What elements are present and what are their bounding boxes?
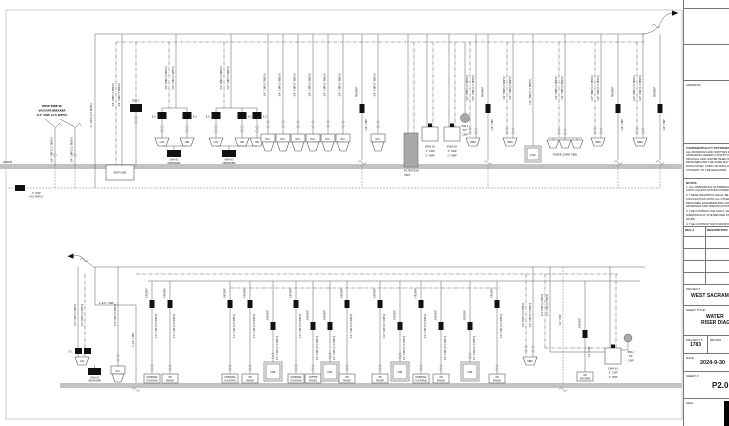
rpz-label: RPZ/BFP	[482, 86, 485, 97]
rpz-backflow-preventer	[468, 322, 473, 330]
pipe-label: 1/2" HWP (2 WSFU)	[165, 66, 168, 89]
water-heater-label: 1" CWP	[425, 149, 435, 153]
valve-icon	[117, 359, 119, 361]
fixture-sink	[559, 140, 571, 148]
fixture-label: FOUNTAIN	[146, 379, 158, 382]
water-heater-label: EWH-03	[608, 368, 618, 371]
valve-icon	[564, 129, 566, 131]
fixture-label: W.C.	[295, 138, 301, 141]
undersink-heater	[222, 150, 236, 157]
valve-icon	[272, 353, 274, 355]
mixing-valve	[212, 112, 221, 119]
mixing-valve	[84, 348, 91, 354]
pipe-label: 1/2" CWP	[621, 119, 624, 131]
rpz-label: RPZ/BFP	[307, 310, 310, 320]
fixture-label: W.C.	[375, 138, 381, 141]
fixture-label: MAKER	[493, 379, 501, 382]
hose-bibb-icon	[55, 124, 60, 129]
rpz-label: RPZ/BFP	[324, 310, 327, 320]
pipe-label: 1/2" CWP (1.5 WSFU)	[276, 336, 279, 360]
mixing-valve	[183, 112, 192, 119]
undersink-label: UNDERSINK	[222, 162, 236, 165]
valve-icon	[600, 128, 602, 130]
valve-icon	[151, 368, 153, 370]
pipe-break-icon	[614, 161, 622, 165]
arrowhead-icon	[672, 11, 679, 16]
fixture-label: URI	[185, 140, 190, 144]
pipe-label: 1-1/2" CWP	[99, 301, 114, 305]
valve-icon	[377, 121, 379, 123]
valve-icon	[249, 368, 251, 370]
fixture-label: URI	[240, 140, 245, 144]
project-number-section: PROJECT # 1783 DRAWN B	[684, 335, 729, 353]
valve-icon	[312, 121, 314, 123]
valve-icon	[312, 125, 314, 127]
pipe-label: 1/2" CWP (0.5 WSFU)	[253, 314, 256, 338]
box	[611, 345, 615, 349]
pipe-label: 3/4" CWP (5 WSFU)	[309, 73, 312, 96]
pipe-label: 3/4" HWP (2 WSFU)	[220, 66, 223, 89]
expansion-tank-label: CWP	[628, 359, 634, 362]
fixture-label: THREE COMP. SINK	[553, 153, 578, 157]
rpz-backflow-preventer	[439, 322, 444, 330]
rpz-label: RPZ/BFP	[464, 310, 467, 320]
pipe-label: 1/2" HWP (1.5 WSFU)	[591, 75, 594, 101]
fixture-label: DW	[398, 370, 403, 374]
title-block: ADDRESS: CONFIDENTIALITY STATEMENT: ALL …	[683, 0, 729, 426]
fixture-sink	[547, 140, 559, 148]
rpz-label: RPZ/BFP	[435, 310, 438, 320]
rpz-label: RPZ/BFP	[224, 288, 227, 298]
rpz-backflow-preventer	[311, 322, 316, 330]
valve-icon	[256, 130, 258, 132]
pipe-label: 3/4" CWP (3 WSFU)	[561, 76, 564, 99]
continuation-arrow	[642, 13, 672, 34]
valve-icon	[594, 128, 596, 130]
revision-row	[684, 237, 729, 249]
valve-icon	[496, 365, 498, 367]
rpz-backflow-preventer	[419, 300, 424, 308]
sheet-title-line2: RISER DIAGRAM	[686, 320, 729, 326]
valve-icon	[642, 131, 644, 133]
rpz-backflow-preventer	[583, 330, 588, 338]
water-heater	[605, 348, 621, 364]
fixture-wc-bowl	[292, 142, 304, 151]
valve-icon	[215, 130, 217, 132]
arrowhead-icon	[68, 254, 74, 259]
valve-icon	[594, 131, 596, 133]
undersink-label: UNDERSINK	[167, 162, 181, 165]
fixture-label: MAKER	[437, 379, 445, 382]
valve-icon	[512, 128, 514, 130]
fixture-label: W.C.	[280, 138, 286, 141]
valve-icon	[267, 125, 269, 127]
valve-icon	[312, 368, 314, 370]
water-heater	[422, 127, 438, 141]
water-heater-label: EWH-01	[425, 145, 435, 149]
fixture-sink	[571, 140, 583, 148]
project-number-value: 1783	[686, 342, 705, 348]
valve-icon	[420, 368, 422, 370]
hose-bibb-icon	[75, 124, 80, 129]
revision-row	[684, 249, 729, 261]
rpz-label: RPZ/BFP	[146, 288, 149, 298]
pipe-label: 1/2" CWP (1 WSFU)	[74, 304, 77, 326]
revision-row	[684, 273, 729, 284]
valve-icon	[267, 121, 269, 123]
water-heater-label: 1" CWP	[447, 149, 457, 153]
undersink-heater	[88, 368, 101, 375]
water-heater-label: 1" HWP	[447, 153, 457, 157]
pipe-break-icon	[559, 388, 567, 392]
fixture-label: SINK	[470, 140, 476, 144]
valve-icon	[399, 353, 401, 355]
pipe-label: 1/2" CWP	[663, 119, 666, 131]
valve-icon	[496, 368, 498, 370]
expansion-tank-label: 3/4"	[463, 129, 468, 132]
rpz-backflow-preventer	[398, 322, 403, 330]
fixture-label: LAV	[160, 140, 165, 144]
rpz-label: RPZ/BFP	[579, 318, 582, 328]
expansion-tank-label: CWP	[462, 133, 468, 136]
box	[450, 124, 454, 128]
valve-icon	[399, 356, 401, 358]
meter-label: (4.5 WSFU)	[29, 196, 43, 199]
expansion-tank	[624, 334, 632, 342]
pipe-label: 3/4" HWP (2 WSFU)	[503, 76, 506, 99]
water-heater-label: 1" HWP	[425, 153, 435, 157]
valve-icon	[558, 132, 560, 134]
valve-icon	[215, 126, 217, 128]
valve-icon	[151, 365, 153, 367]
rpz-label: RPZ/BFP	[612, 86, 615, 97]
rpz-backflow-preventer	[486, 104, 491, 113]
water-meter	[15, 185, 25, 191]
expansion-tank-label: 3/4"	[629, 355, 634, 358]
confidentiality-line: CONSENT OF THE DESIGNER.	[686, 169, 729, 173]
company-box	[684, 44, 729, 80]
pipe-label: 1/2" HWP (1.5 WSFU)	[633, 75, 636, 101]
pipe-label: 3/4" CWP (1.5 WSFU)	[472, 75, 475, 100]
valve-icon	[297, 125, 299, 127]
valve-icon	[342, 125, 344, 127]
fixture-label: SINK	[507, 140, 513, 144]
sheet-border	[6, 10, 682, 419]
valve-icon	[169, 368, 171, 370]
revision-header-row: REV. # DESCRIPTION	[684, 227, 729, 237]
pipe-label: 3/4" CWP (5 WSFU)	[374, 73, 377, 96]
pipe-label: 1/2" CWP (0.5 WSFU)	[424, 314, 427, 338]
grade-line	[0, 164, 682, 169]
valve-icon	[636, 131, 638, 133]
pipe-label: 3/4" CWP (2.5 WSFU)	[71, 137, 74, 162]
valve-icon	[282, 125, 284, 127]
expansion-tank-label: ESP-1	[462, 125, 469, 128]
address-section: ADDRESS:	[684, 80, 729, 143]
fixture-label: W.C.	[340, 138, 346, 141]
rpz-backflow-preventer	[495, 300, 500, 308]
fixture-wc-bowl	[337, 142, 349, 151]
fixture-label: FOUNTAIN	[224, 379, 236, 382]
valve-icon	[186, 130, 188, 132]
valve-icon	[241, 130, 243, 132]
fixture-label: W.C.	[115, 370, 121, 373]
pipe-label: 3/4" CWP (3 WSFU)	[118, 83, 121, 106]
rpz-backflow-preventer	[360, 104, 365, 113]
valve-icon	[379, 368, 381, 370]
valve-icon	[377, 125, 379, 127]
fixture-label: MAKER	[376, 379, 384, 382]
ev-label: E.V.	[248, 116, 252, 119]
project-number-cell: PROJECT # 1783	[684, 336, 708, 353]
valve-icon	[512, 131, 514, 133]
pipe-label: 1/2" CWP (0.5 WSFU)	[155, 314, 158, 338]
confidentiality-text: ALL DRAWINGS AND WRITTEN MATERIALAPPEARI…	[686, 151, 729, 173]
ev-label: E.V.	[193, 116, 197, 119]
ev-label: E.V.	[206, 116, 210, 119]
revision-table: REV. # DESCRIPTION	[684, 226, 729, 284]
valve-icon	[440, 368, 442, 370]
note-2: 2. THESE DRAWINGS SHALL BE USED INCONJUN…	[686, 194, 729, 209]
pipe-label: 1/2" CWP (0.5 WSFU)	[500, 314, 503, 338]
pipe-break-icon	[358, 161, 366, 165]
pipe-label: 1/2" HWP (1.5 WSFU)	[522, 303, 525, 328]
valve-icon	[440, 365, 442, 367]
fixture-wc-bowl	[307, 142, 319, 151]
pipe-label: 1/2" CWP (1.5 WSFU)	[597, 75, 600, 100]
pipe-label: 1/2" CWP	[588, 346, 591, 357]
pipe-label: 1/2" CWP (0.5 WSFU)	[233, 314, 236, 338]
rpz-label: RPZ/BFP	[491, 288, 494, 298]
valve-icon	[475, 128, 477, 130]
filtration-label: FILTRATION	[404, 169, 419, 173]
rev-num-header: REV. #	[684, 227, 706, 236]
seal-label: SEAL	[686, 401, 729, 405]
confidentiality-title: CONFIDENTIALITY STATEMENT:	[686, 146, 729, 150]
sheet-number-section: SHEET # P2.0	[684, 371, 729, 398]
seal-section: SEAL	[684, 398, 729, 426]
valve-icon	[469, 356, 471, 358]
rpz-label: RPZ/BFP	[654, 86, 657, 97]
project-number-label: PROJECT #	[686, 338, 705, 342]
valve-icon	[525, 346, 527, 348]
valve-icon	[295, 368, 297, 370]
fixture-label: DW	[328, 370, 333, 374]
pipe-label: 1/2" CWP (1.5 WSFU)	[529, 79, 532, 104]
pipe-label: 3/4" CWP (2.5 WSFU)	[51, 137, 54, 162]
water-heater-label: 1" HWP	[609, 376, 619, 379]
notes-section: NOTES: 1. ALL DIMENSIONS IN IMPERIALUNIT…	[684, 178, 729, 226]
valve-icon	[346, 368, 348, 370]
pipe-label: 1/2" CWP (1.5 WSFU)	[639, 75, 642, 100]
fixture-wc-bowl	[372, 142, 384, 151]
sheet-title-label: SHEET TITLE:	[686, 308, 729, 312]
fixture-wc-bowl	[322, 142, 334, 151]
valve-icon	[469, 353, 471, 355]
ev-label: E.V.	[263, 116, 267, 119]
pipe-label: 1-1/2" CWP	[132, 333, 135, 347]
rpz-label: RPZ/BFP	[356, 86, 359, 97]
pipe-label: 3/4" CWP (5 WSFU)	[279, 73, 282, 96]
valve-icon	[469, 131, 471, 133]
filtration-unit	[404, 133, 418, 167]
pipe-label: 1/2" HWP (1 WSFU)	[81, 304, 84, 326]
mixing-valve	[75, 348, 82, 354]
date-section: DATE 2024-9-30	[684, 353, 729, 371]
pipe-break-icon	[656, 161, 664, 165]
fixture-label: MAKER	[343, 379, 351, 382]
pipe-break-icon	[484, 161, 492, 165]
valve-icon	[186, 126, 188, 128]
water-heater	[444, 127, 460, 141]
pipe-label: 1/2" CWP (0.5 WSFU)	[350, 314, 353, 338]
valve-icon	[74, 154, 76, 156]
project-label: PROJECT:	[686, 287, 729, 291]
date-value: 2024-9-30	[686, 360, 729, 366]
pipe-label: 3/4" CWP (5 WSFU)	[294, 73, 297, 96]
hose-bibb-icon	[60, 124, 62, 126]
filtration-label: UNIT	[404, 173, 411, 177]
pipe-label: 1/2" CWP	[491, 119, 494, 131]
valve-icon	[532, 346, 534, 348]
fixture-label: URI	[255, 140, 260, 144]
rpz-label: RPZ/BFP	[341, 288, 344, 298]
fixture-label: LAV	[214, 140, 219, 144]
valve-icon	[249, 365, 251, 367]
fixture-label: MACHINE	[580, 377, 591, 380]
valve-icon	[135, 121, 137, 123]
esh-label: ESH-1	[132, 99, 140, 103]
fixture-label: SINK	[527, 360, 533, 363]
valve-icon	[327, 121, 329, 123]
valve-icon	[564, 132, 566, 134]
address-label: ADDRESS:	[686, 83, 729, 87]
valve-icon	[469, 128, 471, 130]
pipe-label: 3/4" HWP (2 WSFU)	[541, 294, 544, 316]
valve-icon	[256, 126, 258, 128]
fixture-label: W.C.	[265, 138, 271, 141]
notes-title: NOTES:	[686, 181, 729, 185]
mixing-valve	[158, 112, 167, 119]
rpz-backflow-preventer	[271, 322, 276, 330]
sheet-number-value: P2.0	[686, 381, 729, 390]
leader-line	[45, 119, 55, 127]
valve-icon	[229, 368, 231, 370]
rpz-label: RPZ/BFP	[244, 288, 247, 298]
valve-icon	[169, 365, 171, 367]
mixing-valve	[238, 112, 247, 119]
note-line: WORK.	[686, 218, 729, 222]
rpz-backflow-preventer	[150, 300, 155, 308]
grade-line	[60, 383, 682, 388]
pipe-label: 1/2" CWP (0.5 WSFU)	[316, 336, 319, 360]
note-3: 3. THE CONTRACTOR SHALL VERIFY ALLDIMENS…	[686, 210, 729, 221]
pipe-label: 3/4" HWP (3 WSFU)	[555, 76, 558, 99]
valve-icon	[532, 350, 534, 352]
water-heater-label: 1" CWP	[609, 372, 618, 375]
pipe-label: 1/2" CWP (1.5 WSFU)	[473, 336, 476, 360]
rpz-backflow-preventer	[294, 300, 299, 308]
valve-icon	[241, 126, 243, 128]
hose-bibb-note: HOSE BIBB W/	[42, 104, 63, 108]
project-name: WEST SACRAMENTO	[686, 293, 729, 299]
valve-icon	[379, 365, 381, 367]
rpz-label: RPZ/BFP	[394, 310, 397, 320]
hose-bibb-note: 3/4" CWP (2.5 WSFU)	[37, 113, 68, 117]
note-line: UNITS UNLESS STATED OTHERWISE.	[686, 189, 729, 193]
rpz-label: RPZ/BFP	[290, 288, 293, 298]
fixture-label: DW	[271, 370, 276, 374]
pipe-label: 1/2" CWP (0.5 WSFU)	[444, 336, 447, 360]
rpz-label: RPZ/BFP	[164, 288, 167, 298]
note-1: 1. ALL DIMENSIONS IN IMPERIALUNITS UNLES…	[686, 186, 729, 193]
meter-label: 1" CWP	[32, 192, 41, 195]
rpz-backflow-preventer	[328, 322, 333, 330]
project-section: PROJECT: WEST SACRAMENTO	[684, 284, 729, 305]
dr awing-sheet: { "colors":{"line":"#5a5a5a","grade":"#c…	[0, 0, 729, 426]
drawn-by-value: B	[710, 342, 729, 348]
valve-icon	[346, 365, 348, 367]
rpz-backflow-preventer	[658, 104, 663, 113]
water-heater-label: EWH-02	[447, 145, 457, 149]
rpz-backflow-preventer	[248, 300, 253, 308]
fixture-wc-bowl	[112, 374, 124, 382]
expansion-tank	[461, 114, 470, 123]
rpz-label: RPZ/BFP	[267, 310, 270, 320]
drawn-by-cell: DRAWN B	[708, 336, 729, 353]
rpz-label: RPZ/BFP	[415, 288, 418, 298]
fixture-label: W.C.	[325, 138, 331, 141]
valve-icon	[297, 121, 299, 123]
fixture-label: LAV	[80, 360, 85, 363]
grade-label: GRADE	[3, 160, 12, 164]
valve-icon	[506, 131, 508, 133]
valve-icon	[475, 131, 477, 133]
fixture-label: FOUNTAIN	[290, 379, 302, 382]
rpz-backflow-preventer	[345, 300, 350, 308]
valve-icon	[558, 129, 560, 131]
rpz-backflow-preventer	[168, 300, 173, 308]
valve-icon	[327, 125, 329, 127]
pipe-label: 3/4" HWP (1 WSFU)	[112, 83, 115, 106]
sheet-title-section: SHEET TITLE: WATER RISER DIAGRAM	[684, 305, 729, 335]
sheet-number-label: SHEET #	[686, 374, 729, 378]
pipe-label: 1/2" CWP (1.5 WSFU)	[403, 336, 406, 360]
fixture-label: W.C.	[310, 138, 316, 141]
valve-icon	[161, 130, 163, 132]
valve-icon	[161, 126, 163, 128]
rev-desc-header: DESCRIPTION	[706, 227, 729, 236]
pipe-label: 1/2" CWP	[365, 119, 368, 131]
ev-label: E.V.	[152, 116, 156, 119]
hose-bibb-icon	[80, 124, 82, 126]
valve-icon	[600, 131, 602, 133]
logo-box	[684, 8, 729, 44]
rpz-backflow-preventer	[378, 300, 383, 308]
valve-icon	[229, 365, 231, 367]
valve-icon	[272, 356, 274, 358]
fixture-label: MAKER	[309, 379, 317, 382]
pipe-label: 1/2" CWP (1.5 WSFU)	[333, 336, 336, 360]
fixture-wc-bowl	[277, 142, 289, 151]
revision-row	[684, 261, 729, 273]
mixing-valve	[253, 112, 262, 119]
valve-icon	[506, 128, 508, 130]
seal-stamp	[724, 401, 729, 426]
valve-icon	[636, 128, 638, 130]
valve-icon	[282, 121, 284, 123]
valve-icon	[525, 350, 527, 352]
